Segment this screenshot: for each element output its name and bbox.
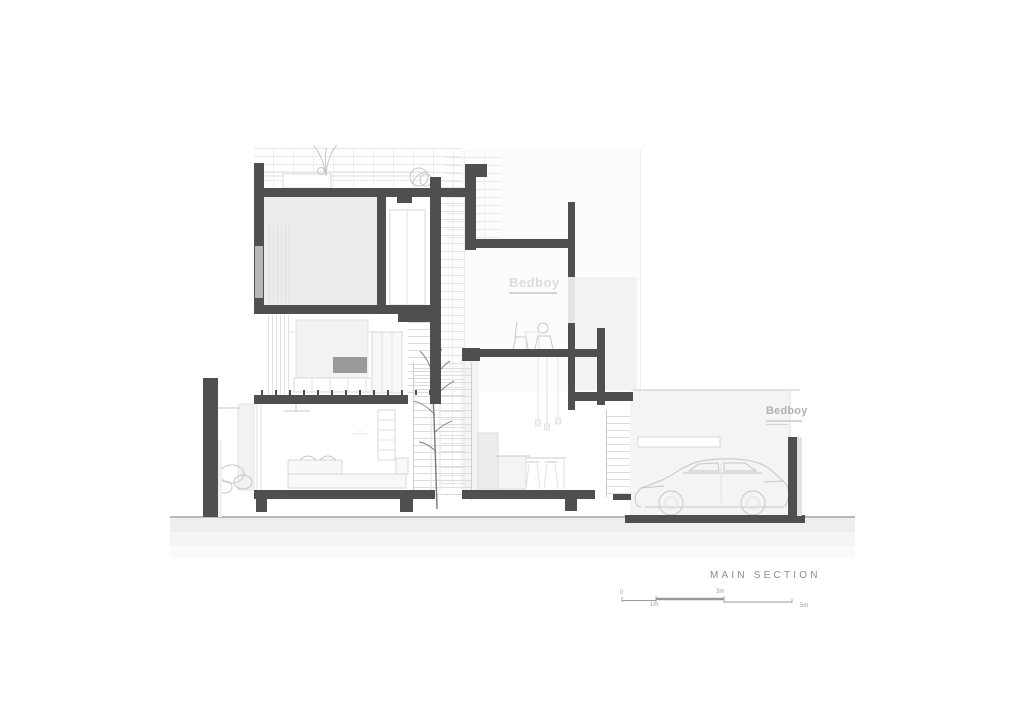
footing [565,499,577,511]
footing [256,499,267,512]
car-wheel [741,491,765,515]
shelf-unit [378,410,395,460]
bedroom-furniture [288,320,402,393]
dining-floor-slab [465,349,605,357]
garage-floor-slab [625,515,805,523]
garage-column [788,437,797,516]
boundary-wall [203,378,218,517]
roof-garden [263,145,432,188]
tv-screen [333,357,367,373]
pendant-lamp [536,420,541,426]
scale-label-1m: 1m [650,602,658,608]
garage-shelf [638,437,720,447]
bedboy-garage-logo-tagline [766,420,802,422]
kitchen-island [498,456,526,489]
planter-pot [318,168,325,175]
entry-wall-band [238,404,254,490]
garage-roof-slab [568,392,633,401]
scale-label-3m: 3m [716,589,724,595]
mid-slab [254,305,440,314]
footing [400,499,413,512]
bedboy-room-logo-tagline [509,292,557,294]
right-wall-upper [568,202,575,277]
chair-square [515,322,527,337]
second-floor-door [390,210,425,305]
bedboy-room-logo: Bedboy [509,275,560,290]
section-linework [0,0,1024,724]
scale-label-5m: 5m [800,603,808,609]
section-title: MAIN SECTION [710,570,821,581]
stair-shaft-wall [430,177,441,404]
living-room [218,404,440,493]
ground [170,517,855,558]
bedboy-garage-logo: Bedboy [766,405,808,417]
bedboy-garage-logo-tagline2 [766,424,788,425]
drawing-canvas: Bedboy Bedboy MAIN SECTION 0 1m 3m 5m [0,0,1024,724]
interior-wall [377,197,386,305]
scale-bar [622,596,792,603]
kitchen-tall-cabinet [478,433,498,489]
tower-wall [465,165,476,250]
ground-slab-kitchen [462,490,595,499]
wardrobe [372,332,402,393]
upper-right-slab [468,239,575,248]
sofa-arm [396,458,408,474]
bedroom-floor-slab [254,395,408,404]
dining-room [513,322,553,349]
car [635,459,789,515]
sofa-cushion [288,460,342,474]
kitchen [478,357,566,489]
ground-slab-left [254,490,435,499]
car-wheel [659,491,683,515]
right-wall-window [568,277,575,323]
sofa-base [288,474,406,488]
scale-label-0: 0 [620,590,623,596]
